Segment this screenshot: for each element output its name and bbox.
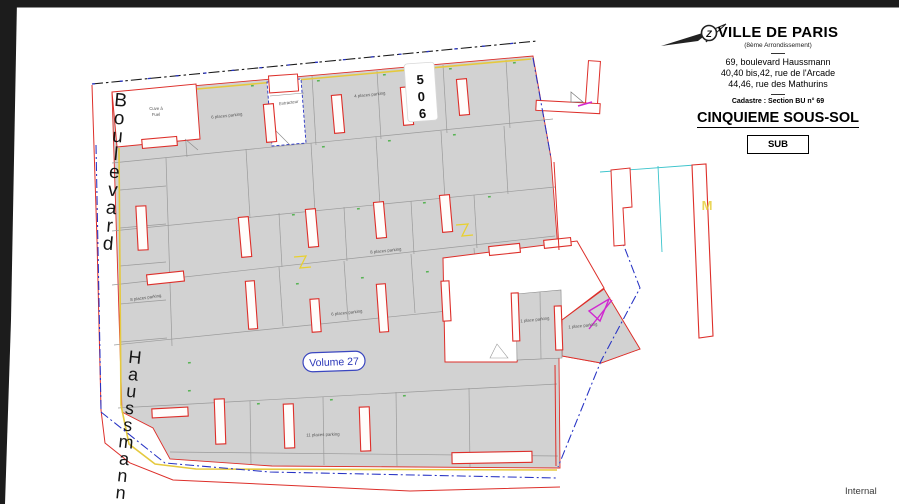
district-subtitle: (8ème Arrondissement)	[658, 42, 898, 49]
title-block: VILLE DE PARIS (8ème Arrondissement) 69,…	[658, 24, 898, 154]
volume-badge: Volume 27	[303, 351, 366, 372]
fuel-room-label: Cuve à	[149, 106, 163, 111]
svg-text:Volume 27: Volume 27	[309, 356, 359, 370]
column-number-plate: 5 0 6	[404, 62, 438, 122]
address-line-3: 44,46, rue des Mathurins	[658, 79, 898, 90]
divider	[771, 53, 785, 54]
sub-stamp: SUB	[747, 135, 809, 154]
svg-text:0: 0	[417, 89, 425, 104]
city-title: VILLE DE PARIS	[658, 24, 898, 41]
address-line-2: 40,40 bis,42, rue de l'Arcade	[658, 68, 898, 79]
stair-wall-structure	[536, 61, 601, 114]
level-title: CINQUIEME SOUS-SOL	[658, 110, 898, 128]
address-line-1: 69, boulevard Haussmann	[658, 57, 898, 68]
svg-text:6: 6	[418, 106, 426, 121]
internal-watermark: Internal	[845, 486, 877, 497]
cadastre-reference: Cadastre : Section BU n° 69	[658, 98, 898, 105]
divider	[771, 94, 785, 95]
metro-m-marker: M	[702, 198, 713, 213]
plan-page: M 5 0 6 Volume 27 Cuve à Fuel Extrac	[0, 0, 899, 504]
svg-text:5: 5	[416, 72, 424, 87]
svg-text:Fuel: Fuel	[152, 112, 160, 117]
